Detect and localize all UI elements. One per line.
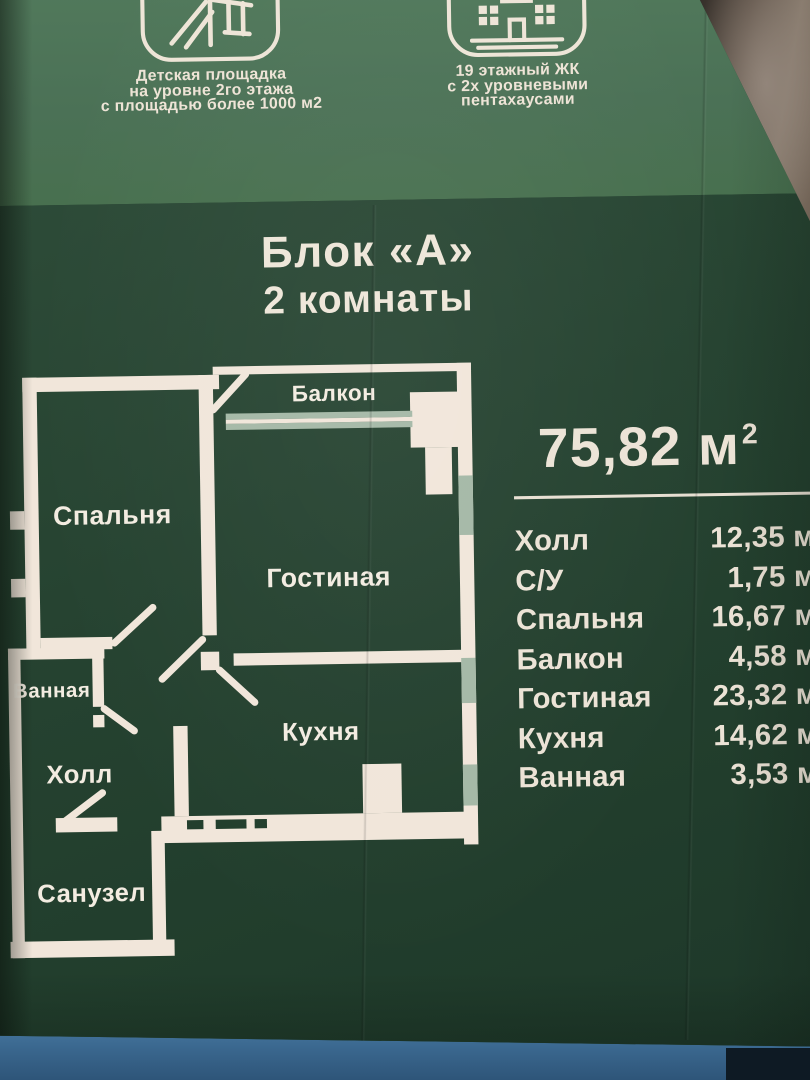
area-row: Гостиная 23,32 м² bbox=[517, 675, 810, 719]
divider-line bbox=[514, 491, 810, 499]
total-area: 75,82 м2 bbox=[513, 402, 810, 480]
block-subtitle: 2 комнаты bbox=[209, 276, 527, 324]
area-label: Холл bbox=[514, 521, 589, 562]
area-row: Кухня 14,62 м² bbox=[518, 714, 810, 758]
room-label-kuhnya: Кухня bbox=[282, 718, 360, 747]
area-table: Холл 12,35 м² С/У 1,75 м² Спальня 16,67 … bbox=[514, 517, 810, 798]
brochure-photo: Детская площадка на уровне 2го этажа с п… bbox=[0, 0, 810, 1080]
room-label-spalnya: Спальня bbox=[53, 499, 172, 531]
area-row: Спальня 16,67 м² bbox=[516, 596, 810, 640]
area-label: Ванная bbox=[518, 757, 626, 798]
block-heading: Блок «А» 2 комнаты bbox=[208, 224, 527, 323]
area-row: Холл 12,35 м² bbox=[514, 517, 810, 561]
room-label-vannaya: Ванная bbox=[13, 679, 91, 703]
area-row: Ванная 3,53 м² bbox=[518, 754, 810, 798]
area-row: С/У 1,75 м² bbox=[515, 556, 810, 600]
area-value: 12,35 м² bbox=[710, 517, 810, 558]
area-label: Балкон bbox=[516, 639, 624, 680]
area-value: 23,32 м² bbox=[712, 675, 810, 716]
brochure-page: Детская площадка на уровне 2го этажа с п… bbox=[0, 0, 810, 1080]
area-row: Балкон 4,58 м² bbox=[516, 635, 810, 679]
area-label: Спальня bbox=[516, 599, 645, 640]
area-summary: 75,82 м2 Холл 12,35 м² С/У 1,75 м² Спаль… bbox=[513, 402, 810, 798]
room-label-gostinaya: Гостиная bbox=[266, 561, 391, 593]
feature-building: 19 этажный ЖК с 2х уровневыми пентахауса… bbox=[389, 0, 645, 110]
area-label: С/У bbox=[515, 561, 564, 601]
area-label: Гостиная bbox=[517, 678, 652, 720]
room-label-holl: Холл bbox=[46, 760, 113, 789]
area-value: 14,62 м² bbox=[713, 714, 810, 755]
floor-plan: Балкон Спальня Гостиная Ванная Холл Кухн… bbox=[0, 352, 499, 966]
room-label-balkon: Балкон bbox=[292, 380, 377, 406]
area-value: 1,75 м² bbox=[727, 556, 810, 597]
table-shadow-patch bbox=[726, 1048, 810, 1080]
room-label-sanuzel: Санузел bbox=[37, 879, 146, 909]
area-value: 16,67 м² bbox=[711, 596, 810, 637]
feature-playground: Детская площадка на уровне 2го этажа с п… bbox=[71, 0, 350, 115]
block-title: Блок «А» bbox=[208, 224, 526, 278]
area-value: 3,53 м² bbox=[730, 754, 810, 795]
playground-icon bbox=[139, 0, 281, 62]
building-icon bbox=[445, 0, 587, 58]
area-value: 4,58 м² bbox=[728, 635, 810, 676]
area-label: Кухня bbox=[518, 718, 606, 759]
